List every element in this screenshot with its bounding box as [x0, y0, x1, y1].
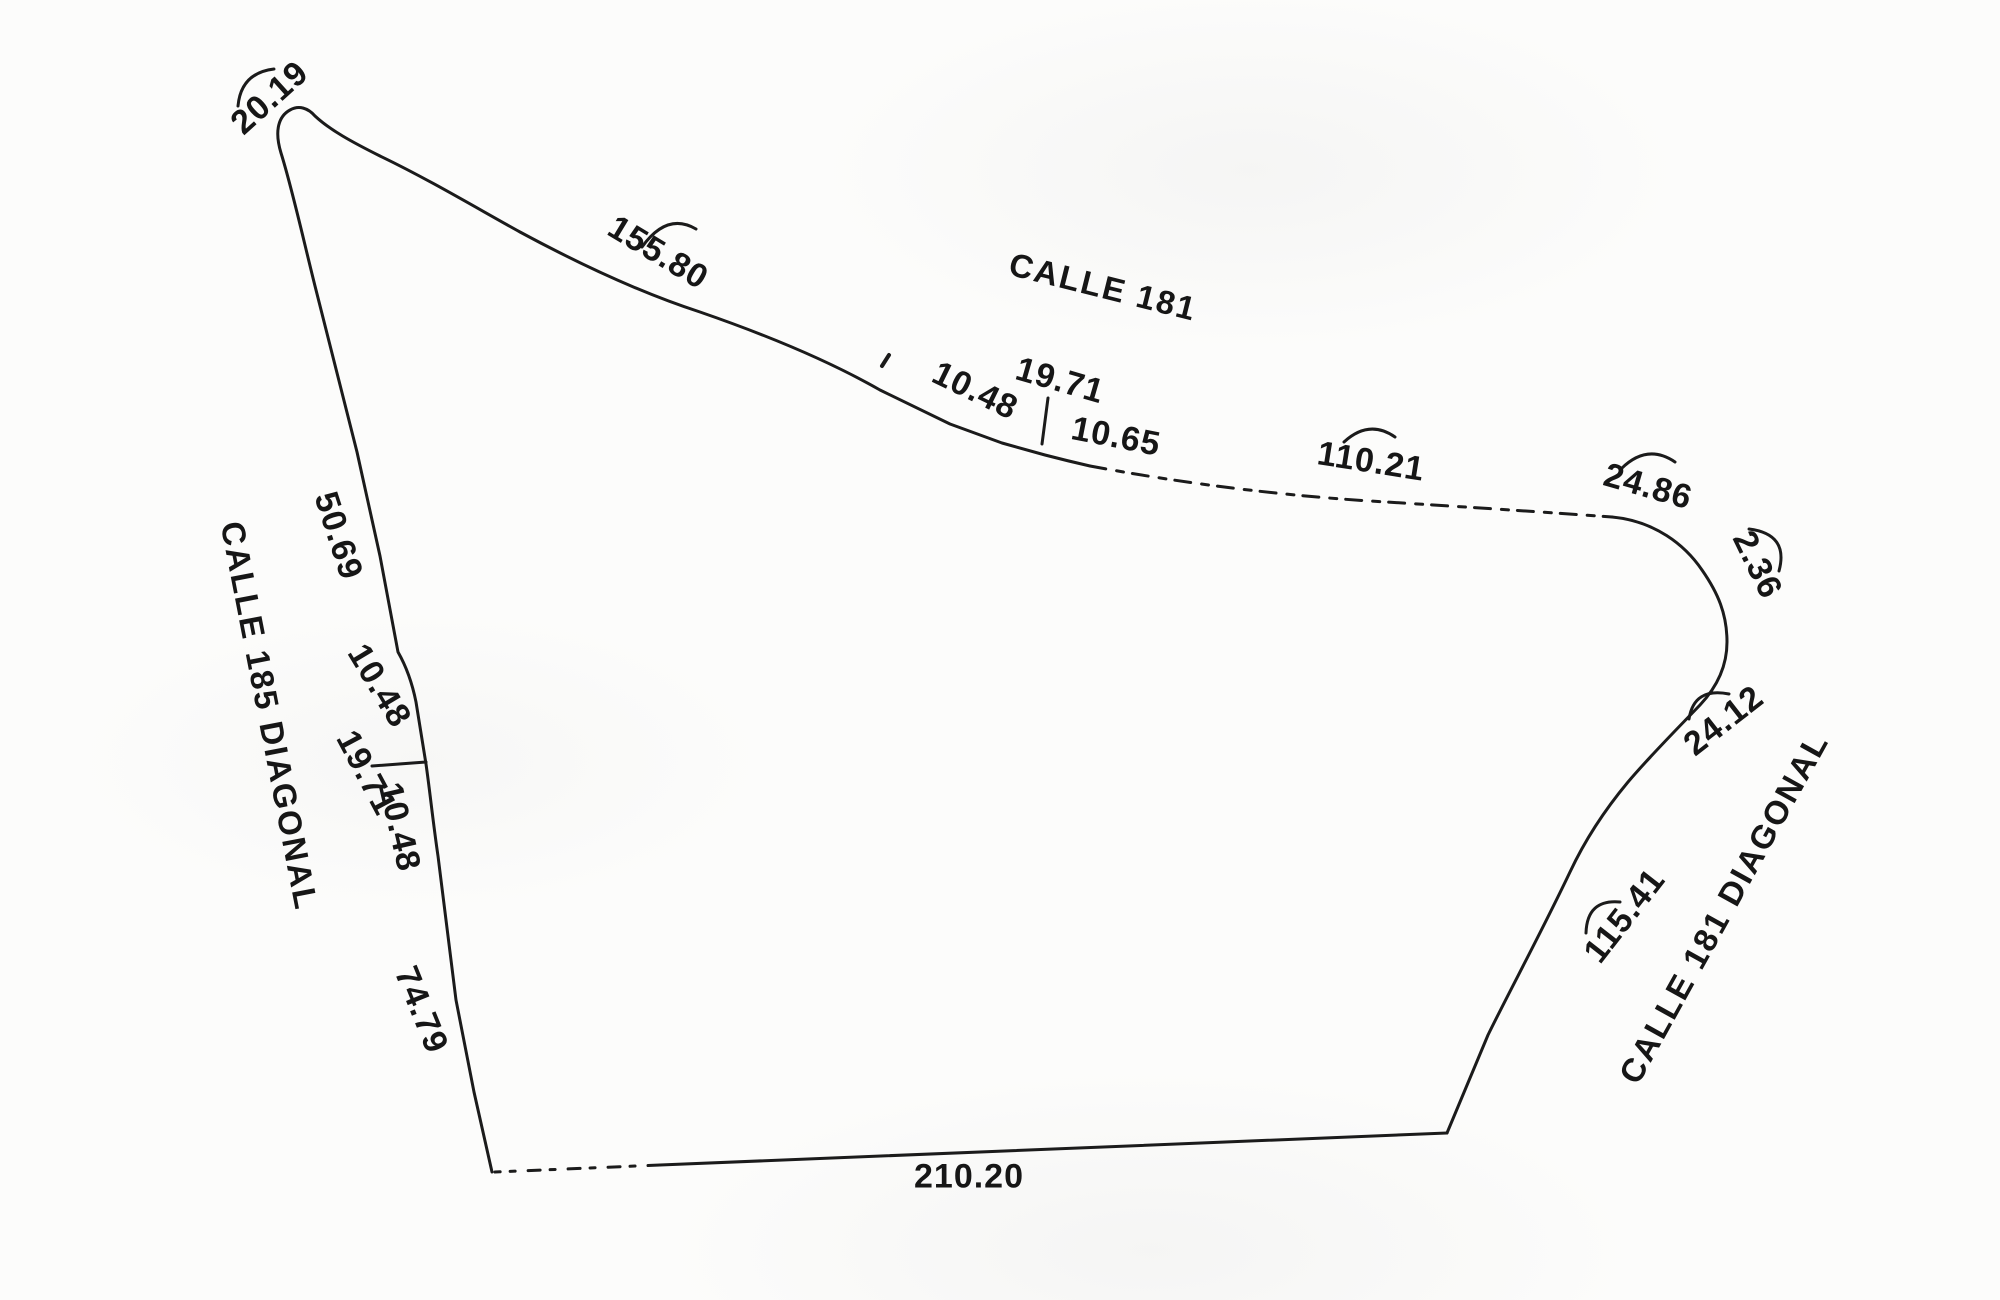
parcel-outline-drawing — [0, 0, 2000, 1300]
parcel-boundary-south-dashed — [495, 1165, 660, 1172]
tick-north-19-71 — [1042, 398, 1048, 444]
stray-mark — [882, 355, 889, 366]
parcel-boundary-east-bulge — [1447, 517, 1727, 1133]
parcel-boundary-south — [660, 1133, 1447, 1165]
measurement-label-210-20: 210.20 — [914, 1158, 1024, 1197]
survey-sketch-canvas: 20.19 155.80 CALLE 181 10.48 19.71 10.65… — [0, 0, 2000, 1300]
